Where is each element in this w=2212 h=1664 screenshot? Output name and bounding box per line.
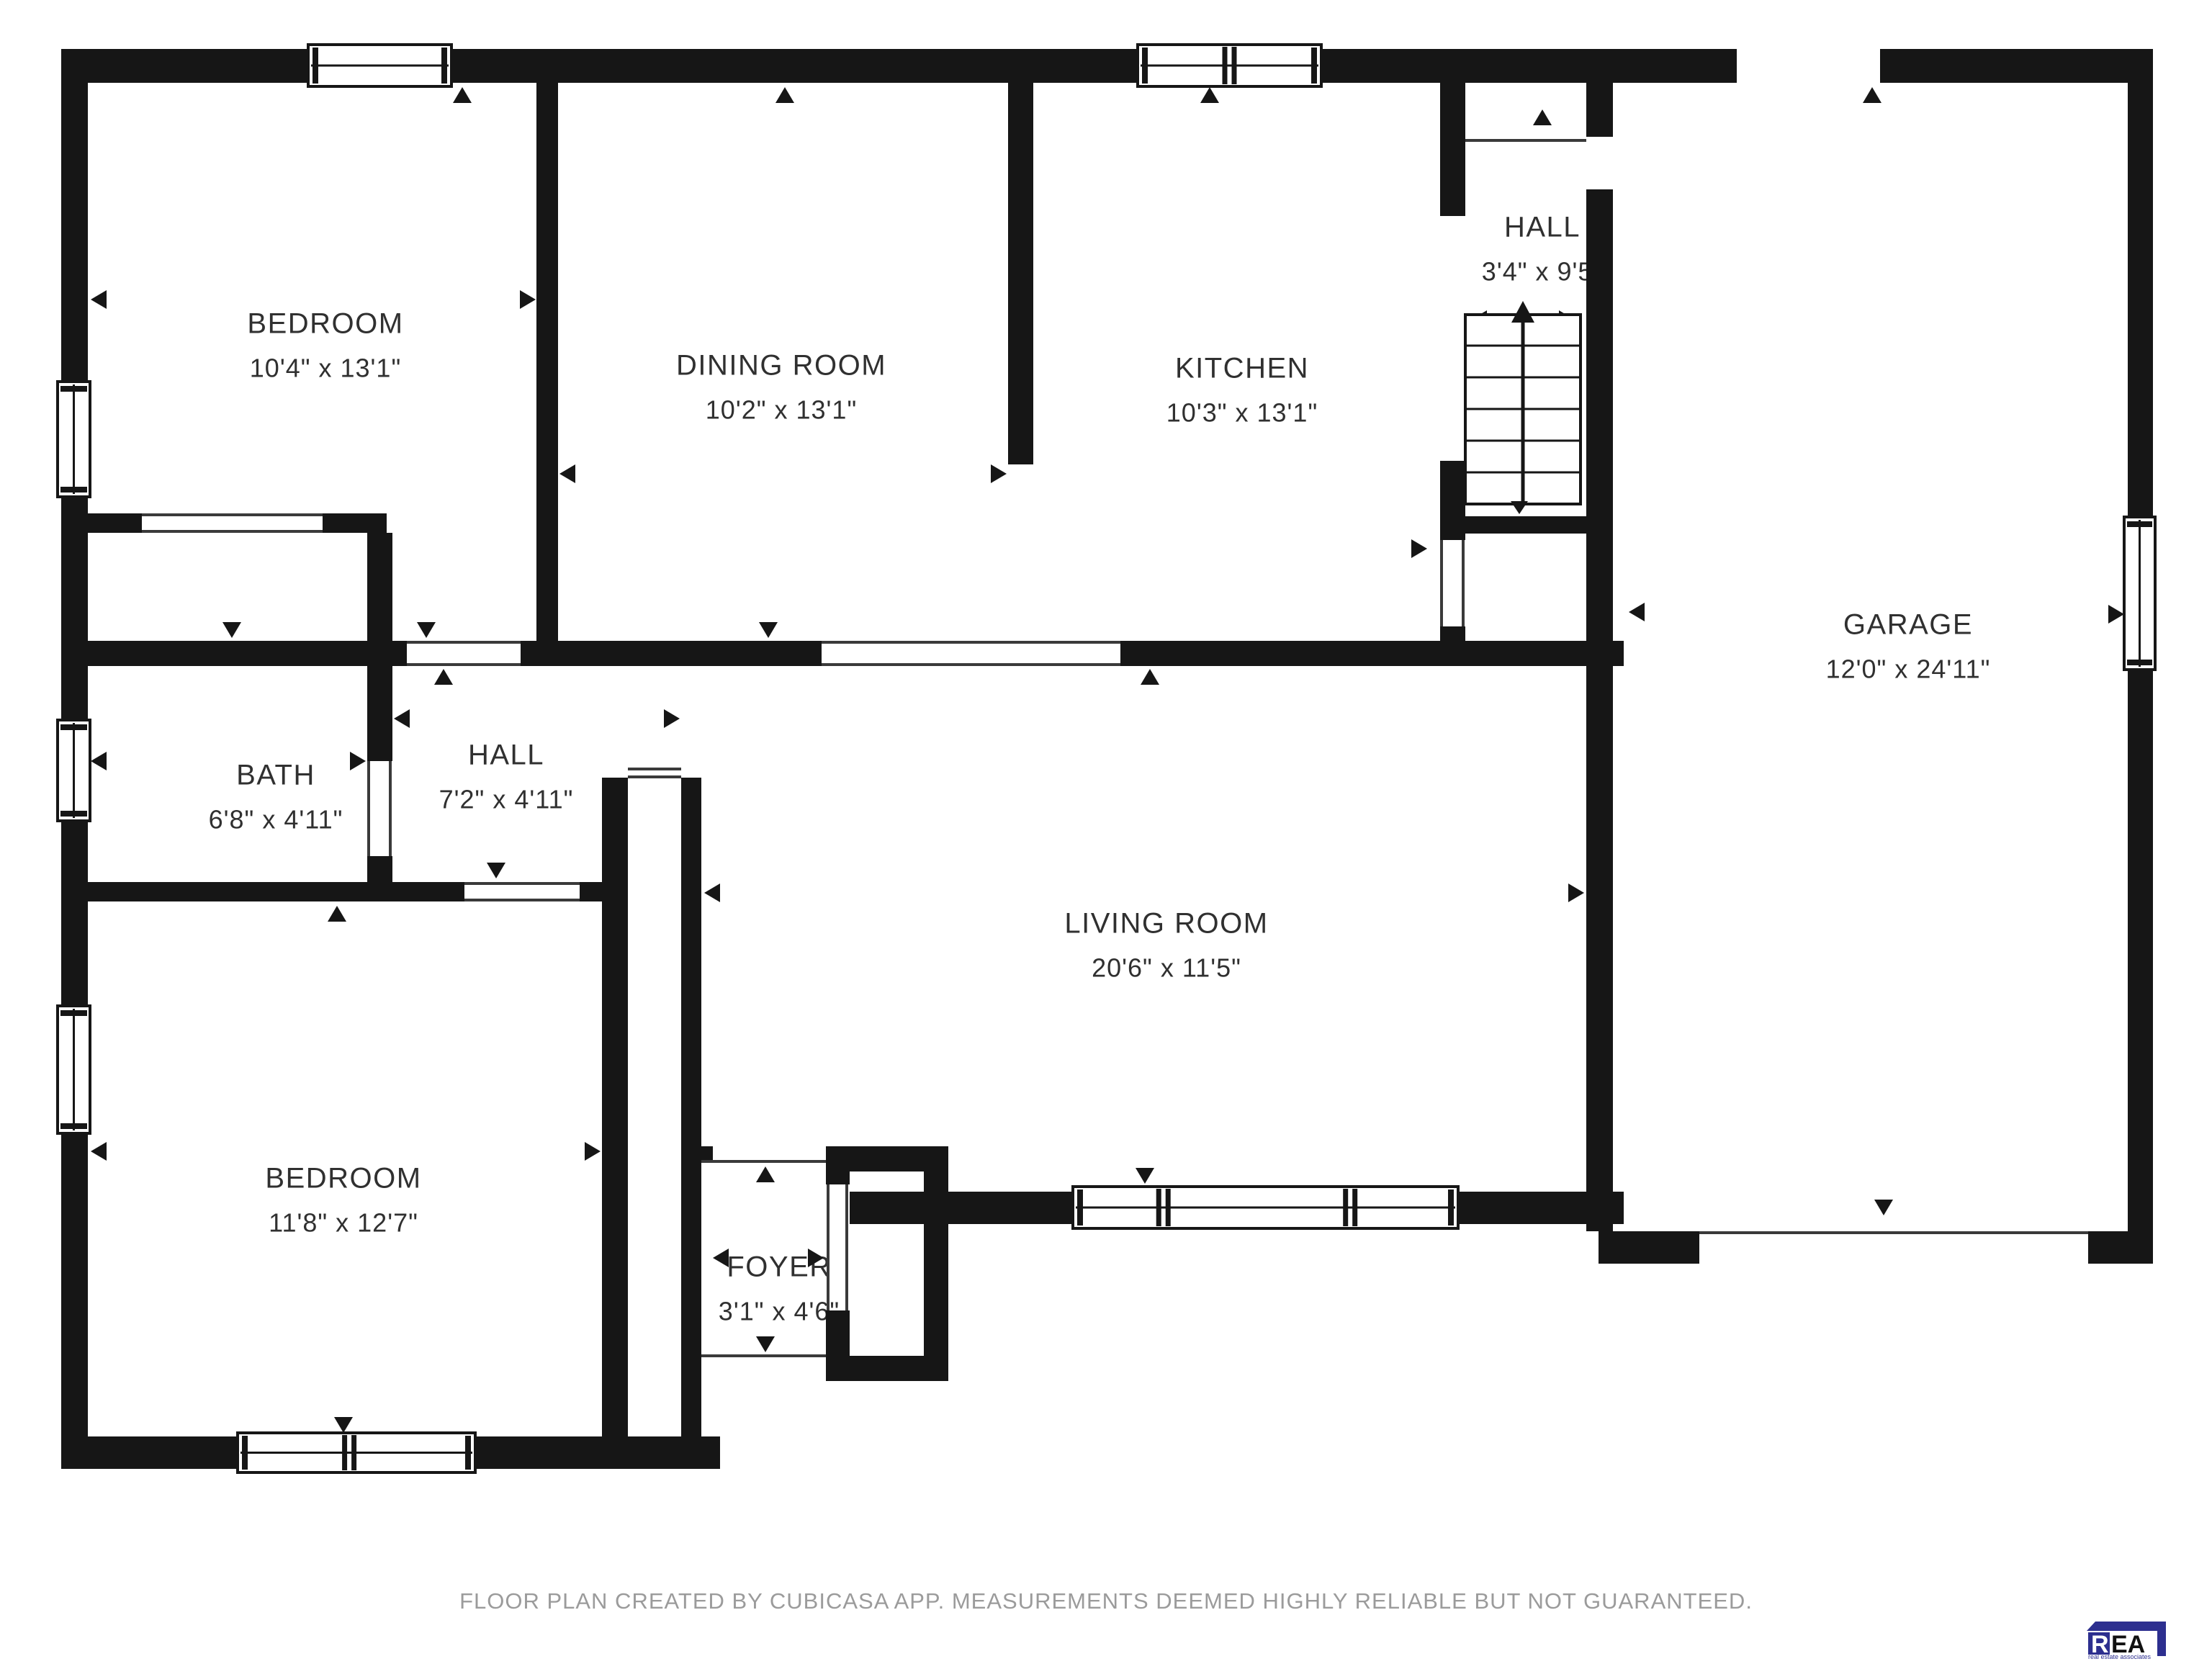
window-frame-cap (60, 811, 87, 817)
wall (1599, 1231, 1699, 1264)
window-divider (1156, 1189, 1161, 1226)
dimension-arrow (417, 622, 436, 638)
window-frame-cap (2127, 660, 2152, 665)
dimension-arrow (713, 1249, 729, 1267)
window-frame-cap (60, 1010, 87, 1016)
dimension-arrow (434, 669, 453, 685)
wall (580, 882, 628, 901)
rea-logo-corner-block (2157, 1650, 2166, 1656)
floor-plan: BEDROOM10'4" x 13'1"DINING ROOM10'2" x 1… (0, 0, 2212, 1659)
room-dimensions: 10'2" x 13'1" (706, 395, 857, 425)
floor-plan-page: BEDROOM10'4" x 13'1"DINING ROOM10'2" x 1… (0, 0, 2212, 1659)
dimension-arrow (559, 464, 575, 483)
dimension-arrow (1533, 109, 1552, 125)
wall (475, 1436, 720, 1469)
dimension-arrow (328, 906, 346, 922)
wall (1321, 49, 1737, 83)
window-divider (351, 1435, 356, 1470)
wall (451, 49, 1138, 83)
window-frame-cap (465, 1436, 471, 1470)
window-divider (1343, 1189, 1348, 1226)
dimension-arrow (2108, 605, 2124, 624)
rea-logo: R EA real estate associates (2085, 1613, 2172, 1659)
wall (681, 778, 701, 1436)
window-frame-cap (1142, 48, 1148, 84)
window-frame-cap (60, 1123, 87, 1129)
dimension-arrow (1200, 87, 1219, 103)
room-label: BATH (236, 760, 315, 791)
wall (826, 1356, 948, 1381)
room-dimensions: 6'8" x 4'11" (209, 805, 343, 835)
wall (2128, 670, 2153, 1264)
wall (61, 882, 464, 901)
window-frame-cap (1448, 1189, 1454, 1225)
dimension-arrow (1874, 1200, 1893, 1215)
wall (1442, 516, 1586, 534)
dimension-arrow (1863, 87, 1881, 103)
disclaimer-text: FLOOR PLAN CREATED BY CUBICASA APP. MEAS… (0, 1588, 2212, 1614)
room-dimensions: 10'4" x 13'1" (250, 354, 401, 383)
room-label: HALL (468, 739, 544, 771)
wall (1008, 83, 1033, 464)
wall (2088, 1231, 2153, 1264)
wall (602, 901, 628, 1469)
wall (61, 641, 407, 666)
wall (2128, 49, 2153, 517)
window-frame-cap (1311, 48, 1317, 84)
wall (536, 83, 558, 649)
wall (323, 513, 387, 533)
wall (61, 821, 88, 1006)
window-frame-cap (60, 724, 87, 730)
wall (924, 1146, 948, 1381)
window-frame-cap (242, 1436, 248, 1470)
room-dimensions: 11'8" x 12'7" (269, 1208, 418, 1238)
wall (367, 666, 392, 761)
dimension-arrow (991, 464, 1007, 483)
room-label: LIVING ROOM (1064, 908, 1268, 940)
room-dimensions: 12'0" x 24'11" (1826, 655, 1991, 684)
dimension-arrow (91, 1142, 107, 1161)
dimension-arrow (91, 752, 107, 770)
window-divider (342, 1435, 347, 1470)
room-label: KITCHEN (1175, 353, 1309, 384)
wall (521, 641, 822, 666)
wall (61, 49, 88, 382)
wall (61, 513, 142, 533)
window-divider (1166, 1189, 1171, 1226)
dimension-arrow (222, 622, 241, 638)
window-divider (1223, 47, 1228, 84)
window-frame-cap (1077, 1189, 1083, 1225)
stairs-bottom-marker (1511, 501, 1528, 514)
wall (1440, 626, 1465, 649)
room-label: GARAGE (1843, 609, 1973, 641)
wall (850, 1192, 1073, 1224)
room-label: BEDROOM (247, 308, 403, 340)
window-frame-cap (2127, 521, 2152, 527)
dimension-arrow (756, 1166, 775, 1182)
room-label: DINING ROOM (676, 350, 886, 382)
dimension-arrow (759, 622, 778, 638)
wall (61, 1436, 238, 1469)
rea-logo-subtext: real estate associates (2088, 1653, 2152, 1660)
dimension-arrow (1136, 1168, 1154, 1184)
wall (701, 1146, 713, 1161)
dimension-arrow (334, 1417, 353, 1433)
wall (826, 1146, 850, 1184)
room-dimensions: 7'2" x 4'11" (439, 785, 574, 814)
window-frame-cap (60, 487, 87, 493)
window-frame-cap (60, 386, 87, 392)
wall (602, 778, 628, 882)
dimension-arrow (350, 752, 366, 770)
dimension-arrow (487, 863, 505, 878)
wall (367, 533, 392, 641)
wall (367, 856, 392, 882)
room-dimensions: 10'3" x 13'1" (1166, 398, 1318, 428)
stairs-up-arrow (1511, 301, 1534, 323)
dimension-arrow (520, 290, 536, 309)
dimension-arrow (453, 87, 472, 103)
dimension-arrow (1411, 539, 1427, 558)
window-frame-cap (441, 48, 447, 84)
wall (61, 1133, 88, 1469)
wall (61, 49, 308, 83)
dimension-arrow (775, 87, 794, 103)
dimension-arrow (394, 709, 410, 728)
window-divider (1232, 47, 1237, 84)
dimension-arrow (756, 1336, 775, 1352)
window-divider (1352, 1189, 1357, 1226)
dimension-arrow (704, 883, 720, 902)
room-label: HALL (1504, 212, 1581, 243)
dimension-arrow (1629, 603, 1645, 621)
room-label: BEDROOM (265, 1163, 421, 1195)
room-dimensions: 20'6" x 11'5" (1092, 953, 1241, 983)
room-dimensions: 3'1" x 4'6" (719, 1297, 840, 1326)
dimension-arrow (1141, 669, 1159, 685)
dimension-arrow (585, 1142, 601, 1161)
dimension-arrow (664, 709, 680, 728)
dimension-arrow (91, 290, 107, 309)
window-frame-cap (313, 48, 318, 84)
dimension-arrow (1568, 883, 1584, 902)
wall (1586, 83, 1613, 137)
wall (1586, 189, 1613, 1231)
wall (1120, 641, 1624, 666)
room-dimensions: 3'4" x 9'5" (1482, 257, 1603, 287)
wall (1440, 83, 1465, 216)
wall (1880, 49, 2153, 83)
